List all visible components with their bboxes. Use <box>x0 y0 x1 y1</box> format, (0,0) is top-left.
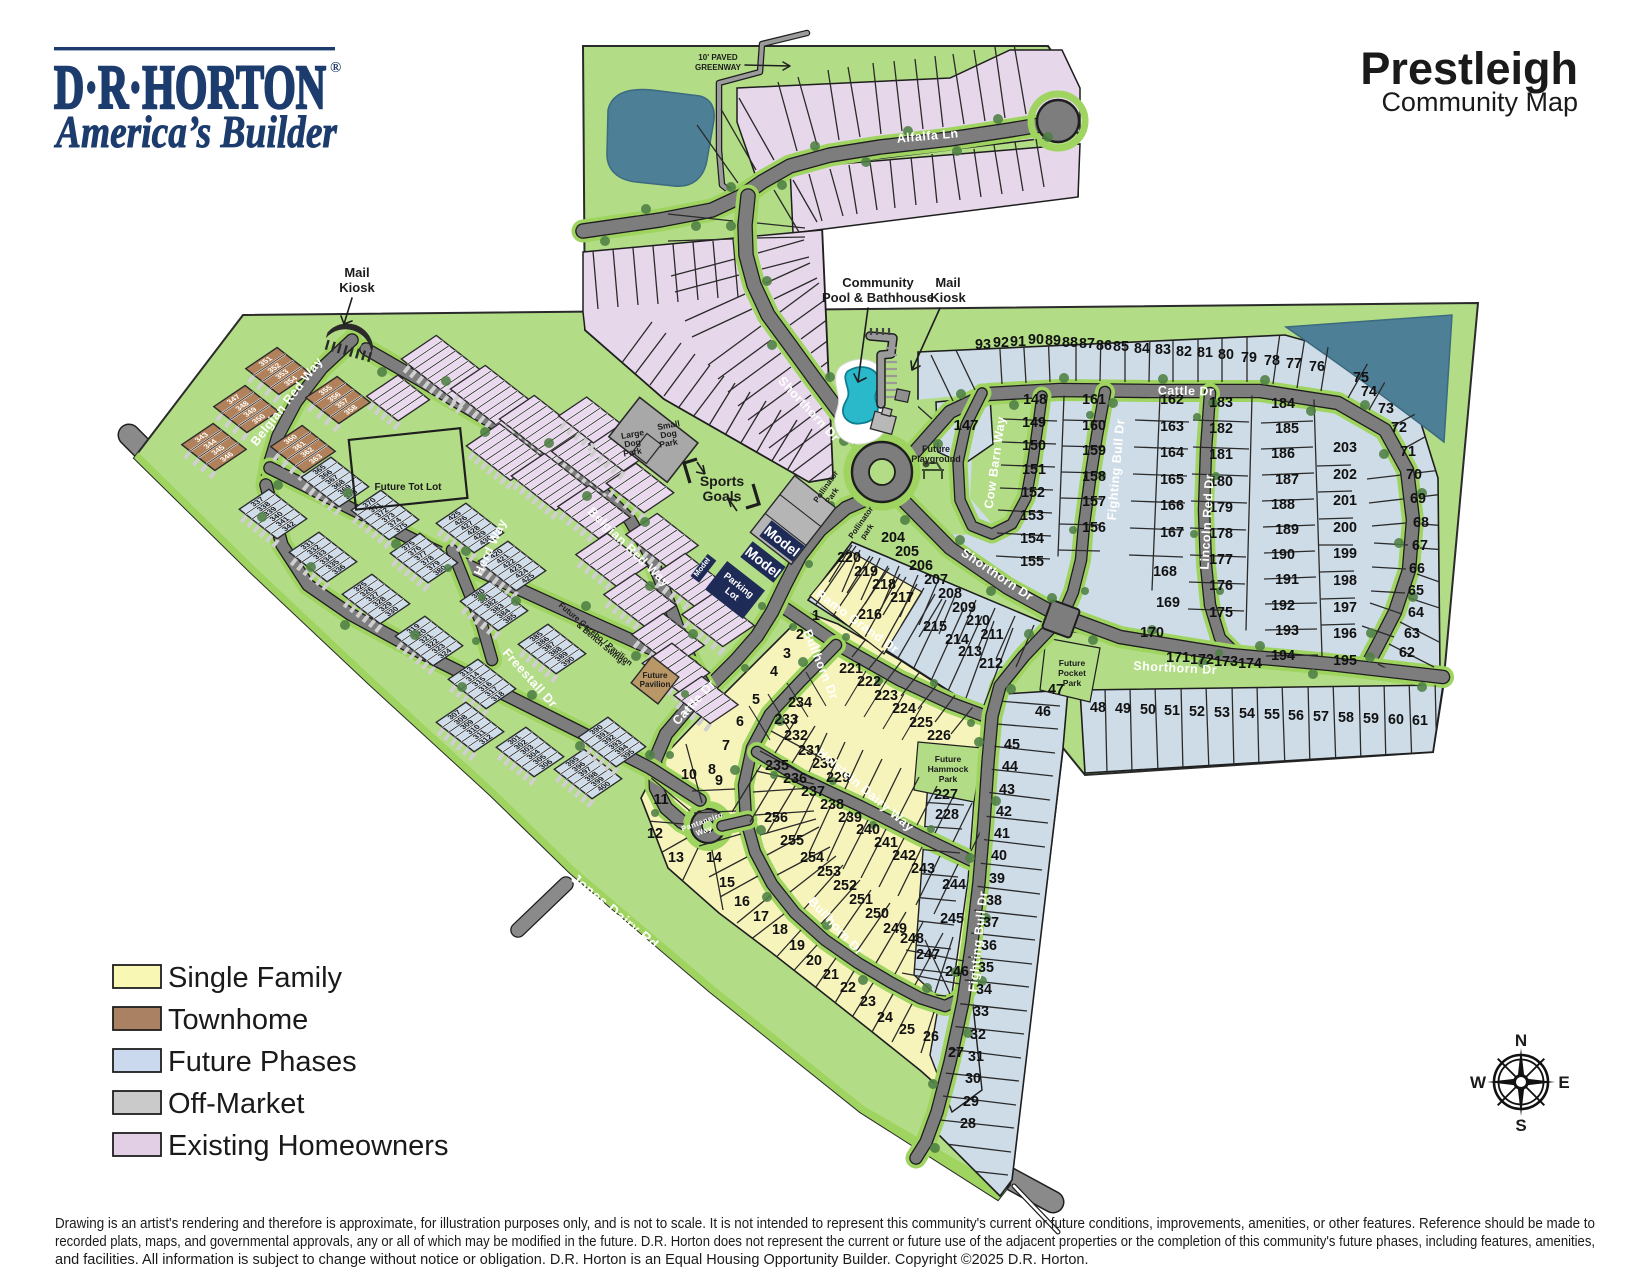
svg-text:212: 212 <box>979 656 1003 672</box>
svg-text:156: 156 <box>1082 520 1106 536</box>
svg-text:67: 67 <box>1412 538 1428 554</box>
svg-text:39: 39 <box>989 871 1005 887</box>
svg-text:Pocket: Pocket <box>1058 668 1086 678</box>
svg-text:Future: Future <box>922 444 950 454</box>
svg-text:92: 92 <box>993 335 1009 351</box>
svg-text:74: 74 <box>1361 384 1377 400</box>
svg-text:86: 86 <box>1096 338 1112 354</box>
svg-text:193: 193 <box>1275 623 1299 639</box>
svg-text:173: 173 <box>1214 654 1238 670</box>
svg-text:52: 52 <box>1189 704 1205 720</box>
svg-text:29: 29 <box>963 1094 979 1110</box>
svg-text:158: 158 <box>1082 469 1106 485</box>
svg-text:63: 63 <box>1404 626 1420 642</box>
svg-text:7: 7 <box>722 738 730 754</box>
svg-text:15: 15 <box>719 875 735 891</box>
svg-text:25: 25 <box>899 1022 915 1038</box>
svg-text:65: 65 <box>1408 583 1424 599</box>
svg-text:155: 155 <box>1020 554 1044 570</box>
svg-text:Pavilion: Pavilion <box>640 680 671 689</box>
svg-text:93: 93 <box>975 337 991 353</box>
svg-text:E: E <box>1558 1073 1569 1092</box>
svg-text:85: 85 <box>1113 339 1129 355</box>
svg-text:88: 88 <box>1062 335 1078 351</box>
svg-text:196: 196 <box>1333 626 1357 642</box>
svg-text:215: 215 <box>923 619 947 635</box>
svg-text:N: N <box>1515 1031 1527 1050</box>
svg-text:and facilities. All informatio: and facilities. All information is subje… <box>55 1252 1088 1268</box>
svg-text:Goals: Goals <box>703 488 742 504</box>
svg-text:46: 46 <box>1035 704 1051 720</box>
svg-text:61: 61 <box>1412 713 1428 729</box>
svg-text:73: 73 <box>1378 401 1394 417</box>
svg-text:Townhome: Townhome <box>168 1004 308 1036</box>
svg-text:195: 195 <box>1333 653 1357 669</box>
svg-text:185: 185 <box>1275 421 1299 437</box>
svg-text:®: ® <box>330 60 341 76</box>
svg-text:S: S <box>1515 1116 1526 1135</box>
svg-text:78: 78 <box>1264 353 1280 369</box>
svg-text:Park: Park <box>1063 678 1082 688</box>
svg-text:14: 14 <box>706 850 722 866</box>
svg-text:Pool & Bathhouse: Pool & Bathhouse <box>822 290 934 305</box>
svg-text:20: 20 <box>806 953 822 969</box>
svg-text:59: 59 <box>1363 711 1379 727</box>
svg-text:W: W <box>1470 1073 1487 1092</box>
svg-text:198: 198 <box>1333 573 1357 589</box>
svg-text:147: 147 <box>953 417 978 434</box>
svg-text:48: 48 <box>1090 700 1106 716</box>
svg-text:211: 211 <box>980 627 1003 643</box>
svg-text:76: 76 <box>1309 359 1325 375</box>
svg-text:50: 50 <box>1140 702 1156 718</box>
svg-text:70: 70 <box>1406 467 1422 483</box>
svg-text:227: 227 <box>934 787 958 803</box>
svg-text:199: 199 <box>1333 546 1357 562</box>
svg-text:250: 250 <box>865 906 889 922</box>
svg-text:Single Family: Single Family <box>168 962 343 994</box>
svg-text:159: 159 <box>1082 443 1106 459</box>
svg-text:69: 69 <box>1410 491 1426 507</box>
svg-text:161: 161 <box>1082 392 1106 408</box>
svg-text:160: 160 <box>1082 418 1106 434</box>
svg-text:163: 163 <box>1160 419 1184 435</box>
svg-text:33: 33 <box>973 1004 989 1020</box>
svg-text:Cattle Dr: Cattle Dr <box>1158 384 1215 399</box>
svg-text:Sports: Sports <box>700 473 745 489</box>
svg-text:202: 202 <box>1333 467 1357 483</box>
svg-text:recorded plats, maps, and gove: recorded plats, maps, and governmental a… <box>55 1234 1595 1250</box>
svg-text:43: 43 <box>999 782 1015 798</box>
svg-text:Park: Park <box>939 774 958 784</box>
svg-text:5: 5 <box>752 692 760 708</box>
svg-text:175: 175 <box>1209 605 1233 621</box>
svg-text:Future: Future <box>1059 658 1086 668</box>
svg-text:234: 234 <box>788 695 812 711</box>
svg-text:4: 4 <box>770 664 778 680</box>
svg-text:87: 87 <box>1079 336 1095 352</box>
svg-text:232: 232 <box>784 728 808 744</box>
svg-text:64: 64 <box>1408 605 1424 621</box>
svg-text:31: 31 <box>968 1049 984 1065</box>
svg-text:153: 153 <box>1020 508 1044 524</box>
svg-text:244: 244 <box>942 877 966 893</box>
svg-text:165: 165 <box>1160 472 1184 488</box>
svg-text:9: 9 <box>715 773 723 789</box>
svg-text:1: 1 <box>812 608 820 624</box>
svg-text:174: 174 <box>1238 656 1262 672</box>
svg-text:68: 68 <box>1413 515 1429 531</box>
svg-text:91: 91 <box>1010 334 1026 350</box>
svg-text:149: 149 <box>1022 415 1046 431</box>
svg-text:66: 66 <box>1409 561 1425 577</box>
svg-text:Mail: Mail <box>344 265 369 280</box>
svg-text:186: 186 <box>1271 446 1295 462</box>
svg-text:166: 166 <box>1160 498 1184 514</box>
svg-text:148: 148 <box>1023 392 1047 408</box>
svg-text:152: 152 <box>1021 485 1045 501</box>
svg-text:19: 19 <box>789 938 805 954</box>
svg-text:58: 58 <box>1338 710 1354 726</box>
svg-text:167: 167 <box>1160 525 1184 541</box>
svg-text:10: 10 <box>681 767 697 783</box>
svg-text:22: 22 <box>840 980 856 996</box>
svg-text:24: 24 <box>877 1010 893 1026</box>
svg-text:256: 256 <box>764 810 788 826</box>
svg-text:77: 77 <box>1286 356 1302 372</box>
svg-text:187: 187 <box>1275 472 1299 488</box>
svg-text:169: 169 <box>1156 595 1180 611</box>
svg-text:79: 79 <box>1241 350 1257 366</box>
svg-text:197: 197 <box>1333 600 1357 616</box>
svg-text:GREENWAY: GREENWAY <box>695 63 742 72</box>
svg-text:30: 30 <box>965 1071 981 1087</box>
svg-text:10' PAVED: 10' PAVED <box>698 53 738 62</box>
svg-text:201: 201 <box>1333 493 1357 509</box>
svg-text:Community Map: Community Map <box>1381 87 1578 117</box>
svg-text:217: 217 <box>890 590 914 606</box>
svg-text:17: 17 <box>753 909 769 925</box>
svg-text:62: 62 <box>1399 645 1415 661</box>
svg-text:Mail: Mail <box>935 275 960 290</box>
svg-text:America’s Builder: America’s Builder <box>54 107 338 157</box>
svg-text:189: 189 <box>1275 522 1299 538</box>
svg-text:26: 26 <box>923 1029 939 1045</box>
svg-text:243: 243 <box>911 861 935 877</box>
svg-text:181: 181 <box>1209 447 1233 463</box>
svg-text:89: 89 <box>1045 333 1061 349</box>
svg-text:157: 157 <box>1082 494 1106 510</box>
svg-text:255: 255 <box>780 833 804 849</box>
svg-text:56: 56 <box>1288 708 1304 724</box>
svg-text:Existing Homeowners: Existing Homeowners <box>168 1130 448 1162</box>
svg-text:176: 176 <box>1209 578 1233 594</box>
svg-text:151: 151 <box>1022 462 1046 478</box>
svg-text:Community: Community <box>842 275 914 290</box>
svg-text:Drawing is an artist's renderi: Drawing is an artist's rendering and the… <box>55 1216 1595 1232</box>
svg-text:27: 27 <box>948 1045 964 1061</box>
svg-text:245: 245 <box>940 911 964 927</box>
svg-text:Future: Future <box>935 754 962 764</box>
svg-text:45: 45 <box>1004 737 1020 753</box>
svg-text:Off-Market: Off-Market <box>168 1088 304 1120</box>
svg-text:228: 228 <box>935 807 959 823</box>
svg-text:246: 246 <box>945 964 969 980</box>
svg-text:12: 12 <box>647 826 663 842</box>
svg-text:Future Tot Lot: Future Tot Lot <box>374 482 442 493</box>
svg-text:83: 83 <box>1155 342 1171 358</box>
svg-text:233: 233 <box>774 712 798 728</box>
svg-text:82: 82 <box>1176 344 1192 360</box>
svg-text:154: 154 <box>1020 531 1044 547</box>
svg-text:11: 11 <box>653 792 668 808</box>
svg-text:55: 55 <box>1264 707 1280 723</box>
svg-text:203: 203 <box>1333 440 1357 456</box>
svg-text:23: 23 <box>860 994 876 1010</box>
svg-text:44: 44 <box>1002 759 1018 775</box>
svg-text:80: 80 <box>1218 347 1234 363</box>
svg-text:40: 40 <box>991 848 1007 864</box>
svg-text:177: 177 <box>1209 552 1233 568</box>
svg-text:6: 6 <box>736 714 744 730</box>
svg-text:28: 28 <box>960 1116 976 1132</box>
svg-text:Hammock: Hammock <box>928 764 969 774</box>
svg-text:49: 49 <box>1115 701 1131 717</box>
svg-text:192: 192 <box>1271 598 1295 614</box>
svg-text:182: 182 <box>1209 421 1233 437</box>
svg-text:Future Phases: Future Phases <box>168 1046 357 1078</box>
svg-text:Kiosk: Kiosk <box>339 280 375 295</box>
svg-text:248: 248 <box>900 931 924 947</box>
svg-text:42: 42 <box>996 804 1012 820</box>
svg-text:47: 47 <box>1048 682 1064 698</box>
svg-text:3: 3 <box>783 646 791 662</box>
svg-text:Future: Future <box>643 671 668 680</box>
svg-text:150: 150 <box>1022 438 1046 454</box>
svg-text:190: 190 <box>1271 547 1295 563</box>
svg-text:21: 21 <box>823 967 839 983</box>
svg-text:194: 194 <box>1271 648 1295 664</box>
svg-text:168: 168 <box>1153 564 1177 580</box>
svg-text:191: 191 <box>1275 572 1299 588</box>
svg-text:188: 188 <box>1271 497 1295 513</box>
svg-text:51: 51 <box>1164 703 1180 719</box>
svg-text:41: 41 <box>994 826 1010 842</box>
svg-text:71: 71 <box>1400 444 1416 460</box>
svg-text:13: 13 <box>668 850 684 866</box>
svg-text:57: 57 <box>1313 709 1329 725</box>
svg-text:81: 81 <box>1197 345 1213 361</box>
svg-text:72: 72 <box>1391 420 1407 436</box>
svg-text:200: 200 <box>1333 520 1357 536</box>
svg-text:Playground: Playground <box>911 454 961 464</box>
svg-text:90: 90 <box>1028 332 1044 348</box>
svg-text:170: 170 <box>1140 625 1164 641</box>
svg-text:184: 184 <box>1271 396 1295 412</box>
svg-text:54: 54 <box>1239 706 1255 722</box>
svg-text:Kiosk: Kiosk <box>930 290 966 305</box>
svg-text:226: 226 <box>927 728 951 744</box>
svg-text:60: 60 <box>1388 712 1404 728</box>
svg-text:53: 53 <box>1214 705 1230 721</box>
svg-text:164: 164 <box>1160 445 1184 461</box>
svg-text:16: 16 <box>734 894 750 910</box>
svg-text:18: 18 <box>772 922 788 938</box>
svg-text:84: 84 <box>1134 341 1150 357</box>
svg-text:32: 32 <box>970 1027 986 1043</box>
svg-text:247: 247 <box>916 947 940 963</box>
